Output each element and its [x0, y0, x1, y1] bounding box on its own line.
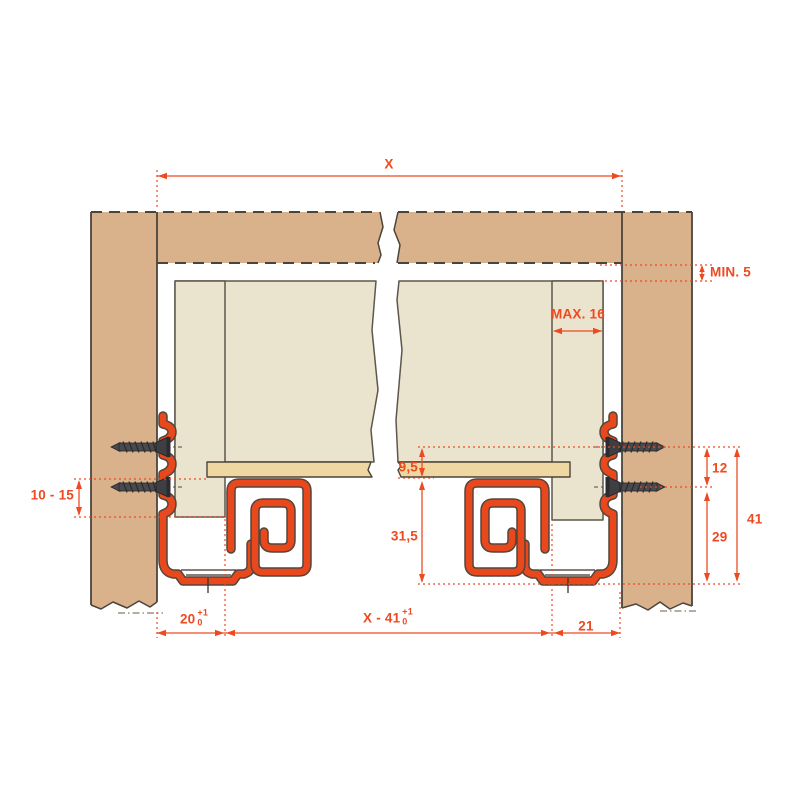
dim-label-cabinet-width: X — [384, 157, 393, 171]
drawing-canvas — [0, 0, 800, 800]
center-span-value: X - 41 — [363, 611, 400, 626]
drawer-left-side — [175, 281, 225, 517]
top-panel-right — [394, 212, 622, 263]
dim-label-bottom-thickness: 9,5 — [399, 460, 418, 474]
top-panel-left — [157, 212, 383, 263]
installation-drawing: X MIN. 5 MAX. 16 9,5 31,5 12 29 41 10 - … — [0, 0, 800, 800]
left-cabinet-panel — [91, 212, 157, 609]
drawer-bottom-left — [207, 462, 372, 477]
dim-label-min-top-clearance: MIN. 5 — [710, 265, 751, 279]
dim-label-screw-gap: 12 — [712, 461, 727, 475]
dim-label-below-bottom: 31,5 — [391, 529, 418, 543]
dim-label-back-offset: 21 — [578, 619, 593, 633]
front-offset-tolerance: +10 — [197, 608, 208, 629]
front-offset-value: 20 — [180, 612, 195, 627]
dim-label-center-span: X - 41+10 — [363, 609, 413, 630]
dim-41 — [734, 448, 740, 582]
dim-label-upper-screw-height: 41 — [747, 512, 762, 526]
center-span-tolerance: +10 — [402, 607, 413, 628]
dim-label-front-offset: 20+10 — [180, 610, 208, 631]
dim-label-lower-screw-height: 29 — [712, 530, 727, 544]
dim-29 — [704, 492, 710, 582]
dim-label-screw-range: 10 - 15 — [31, 488, 74, 502]
dim-x — [157, 170, 622, 208]
right-cabinet-panel — [622, 212, 692, 610]
dim-label-max-side-thickness: MAX. 16 — [551, 307, 605, 321]
